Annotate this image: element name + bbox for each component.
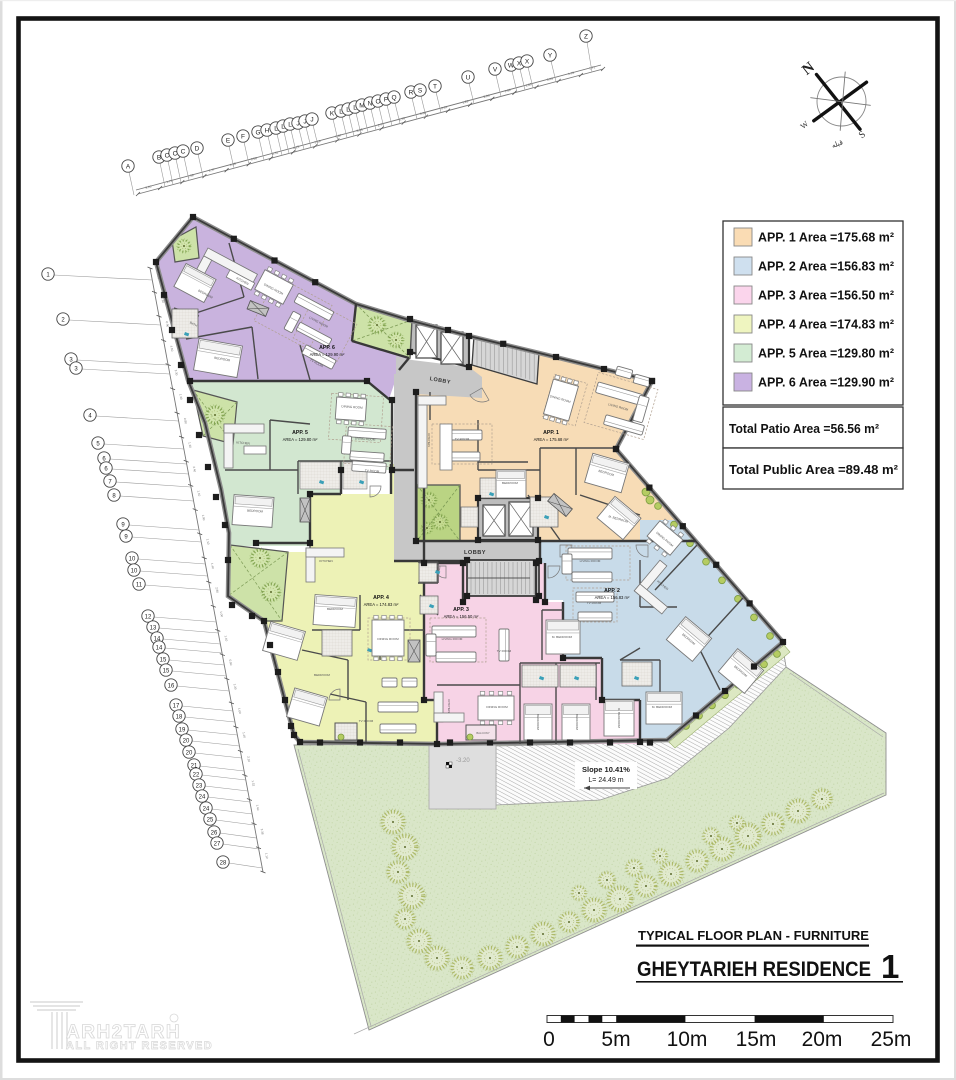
svg-text:L= 24.49 m: L= 24.49 m <box>588 777 623 784</box>
svg-text:27: 27 <box>214 841 221 847</box>
svg-text:X: X <box>525 58 530 65</box>
svg-text:TYPICAL FLOOR PLAN - FURNITURE: TYPICAL FLOOR PLAN - FURNITURE <box>638 928 869 943</box>
svg-text:LIVING ROOM: LIVING ROOM <box>580 559 601 563</box>
svg-text:20: 20 <box>183 738 190 744</box>
svg-text:R. BEDROOM: R. BEDROOM <box>617 708 621 728</box>
svg-text:APP. 5 Area =129.80 m²: APP. 5 Area =129.80 m² <box>758 346 894 361</box>
svg-text:11: 11 <box>136 582 143 588</box>
svg-text:TV ROOM: TV ROOM <box>497 649 512 653</box>
svg-text:10m: 10m <box>667 1028 708 1051</box>
svg-text:10: 10 <box>131 568 138 574</box>
svg-text:APP. 1 Area =175.68 m²: APP. 1 Area =175.68 m² <box>758 230 894 245</box>
svg-text:KITCHEN: KITCHEN <box>447 699 451 713</box>
svg-text:D: D <box>195 145 200 152</box>
svg-text:AREA = 174.83 m²: AREA = 174.83 m² <box>364 602 399 607</box>
svg-text:5m: 5m <box>601 1028 630 1051</box>
svg-text:LIVING ROOM: LIVING ROOM <box>442 637 463 641</box>
svg-text:APP. 3: APP. 3 <box>453 607 469 613</box>
svg-text:M. BEDROOM: M. BEDROOM <box>652 705 673 709</box>
svg-text:22: 22 <box>193 772 200 778</box>
svg-text:BEDROOM: BEDROOM <box>502 481 518 485</box>
svg-text:15m: 15m <box>736 1028 777 1051</box>
svg-text:APP. 2 Area =156.83 m²: APP. 2 Area =156.83 m² <box>758 259 894 274</box>
svg-text:AREA = 129.80 m²: AREA = 129.80 m² <box>283 437 318 442</box>
svg-text:LOBBY: LOBBY <box>464 550 486 556</box>
svg-text:23: 23 <box>196 783 203 789</box>
svg-text:BALCONY: BALCONY <box>476 731 490 735</box>
svg-text:Q: Q <box>391 94 396 101</box>
svg-text:AREA = 156.50 m²: AREA = 156.50 m² <box>444 614 479 619</box>
svg-text:Total Public Area =89.48 m²: Total Public Area =89.48 m² <box>729 462 898 477</box>
svg-text:M. BEDROOM: M. BEDROOM <box>552 635 573 639</box>
svg-text:APP. 4 Area =174.83 m²: APP. 4 Area =174.83 m² <box>758 317 894 332</box>
svg-text:AREA = 175.68 m²: AREA = 175.68 m² <box>534 437 569 442</box>
svg-text:Z: Z <box>584 33 588 40</box>
svg-text:AREA = 156.83 m²: AREA = 156.83 m² <box>595 595 630 600</box>
svg-text:28: 28 <box>220 860 227 866</box>
svg-text:17: 17 <box>173 703 180 709</box>
svg-text:25m: 25m <box>871 1028 912 1051</box>
svg-text:18: 18 <box>176 714 183 720</box>
svg-text:10: 10 <box>129 556 136 562</box>
svg-text:R: R <box>409 89 414 96</box>
svg-text:20: 20 <box>186 750 193 756</box>
svg-text:APP. 3 Area =156.50 m²: APP. 3 Area =156.50 m² <box>758 288 894 303</box>
svg-text:Y: Y <box>548 52 553 59</box>
svg-text:V: V <box>493 66 498 73</box>
svg-text:A: A <box>126 163 131 170</box>
svg-text:13: 13 <box>150 625 157 631</box>
svg-text:25: 25 <box>207 817 214 823</box>
svg-text:26: 26 <box>211 830 218 836</box>
svg-text:24: 24 <box>203 806 210 812</box>
svg-text:C: C <box>181 148 186 155</box>
svg-text:14: 14 <box>156 645 163 651</box>
svg-text:BEDROOM: BEDROOM <box>314 673 330 677</box>
svg-text:APP. 6: APP. 6 <box>319 345 335 351</box>
svg-text:BEDROOM: BEDROOM <box>536 714 540 730</box>
svg-text:APP. 6 Area =129.90 m²: APP. 6 Area =129.90 m² <box>758 375 894 390</box>
svg-text:H: H <box>265 127 270 134</box>
svg-text:ALL RIGHT RESERVED: ALL RIGHT RESERVED <box>66 1040 213 1052</box>
svg-text:Total Patio Area =56.56 m²: Total Patio Area =56.56 m² <box>729 421 879 436</box>
svg-text:TV ROOM: TV ROOM <box>587 601 602 605</box>
svg-text:15: 15 <box>160 657 167 663</box>
svg-text:0: 0 <box>543 1028 555 1051</box>
svg-text:16: 16 <box>168 683 175 689</box>
svg-text:APP. 5: APP. 5 <box>292 430 308 436</box>
svg-text:E: E <box>226 137 231 144</box>
svg-text:APP. 4: APP. 4 <box>373 595 389 601</box>
svg-text:F: F <box>241 133 245 140</box>
svg-text:AREA = 129.90 m²: AREA = 129.90 m² <box>310 352 345 357</box>
svg-text:T: T <box>433 83 437 90</box>
svg-text:G: G <box>255 129 260 136</box>
svg-text:Slope 10.41%: Slope 10.41% <box>582 765 630 774</box>
svg-text:-3.20: -3.20 <box>456 758 470 764</box>
svg-text:12: 12 <box>145 614 152 620</box>
svg-text:19: 19 <box>179 727 186 733</box>
svg-text:APP. 1: APP. 1 <box>543 430 559 436</box>
svg-text:20m: 20m <box>802 1028 843 1051</box>
svg-text:APP. 2: APP. 2 <box>604 588 620 594</box>
svg-text:J: J <box>310 116 313 123</box>
svg-text:U: U <box>466 74 471 81</box>
svg-text:K: K <box>330 110 335 117</box>
svg-text:KITCHEN: KITCHEN <box>319 559 333 563</box>
svg-text:15: 15 <box>163 668 170 674</box>
svg-text:S: S <box>418 87 423 94</box>
svg-text:24: 24 <box>199 794 206 800</box>
svg-text:BEDROOM: BEDROOM <box>327 607 343 611</box>
svg-text:DINING ROOM: DINING ROOM <box>486 705 508 709</box>
svg-text:1: 1 <box>881 948 899 985</box>
svg-text:TV ROOM: TV ROOM <box>455 437 470 441</box>
svg-text:KITCHEN: KITCHEN <box>427 433 431 447</box>
svg-text:TV ROOM: TV ROOM <box>359 719 374 723</box>
svg-text:GHEYTARIEH RESIDENCE: GHEYTARIEH RESIDENCE <box>637 957 871 981</box>
svg-text:DINING ROOM: DINING ROOM <box>377 637 399 641</box>
svg-text:BEDROOM: BEDROOM <box>575 714 579 730</box>
